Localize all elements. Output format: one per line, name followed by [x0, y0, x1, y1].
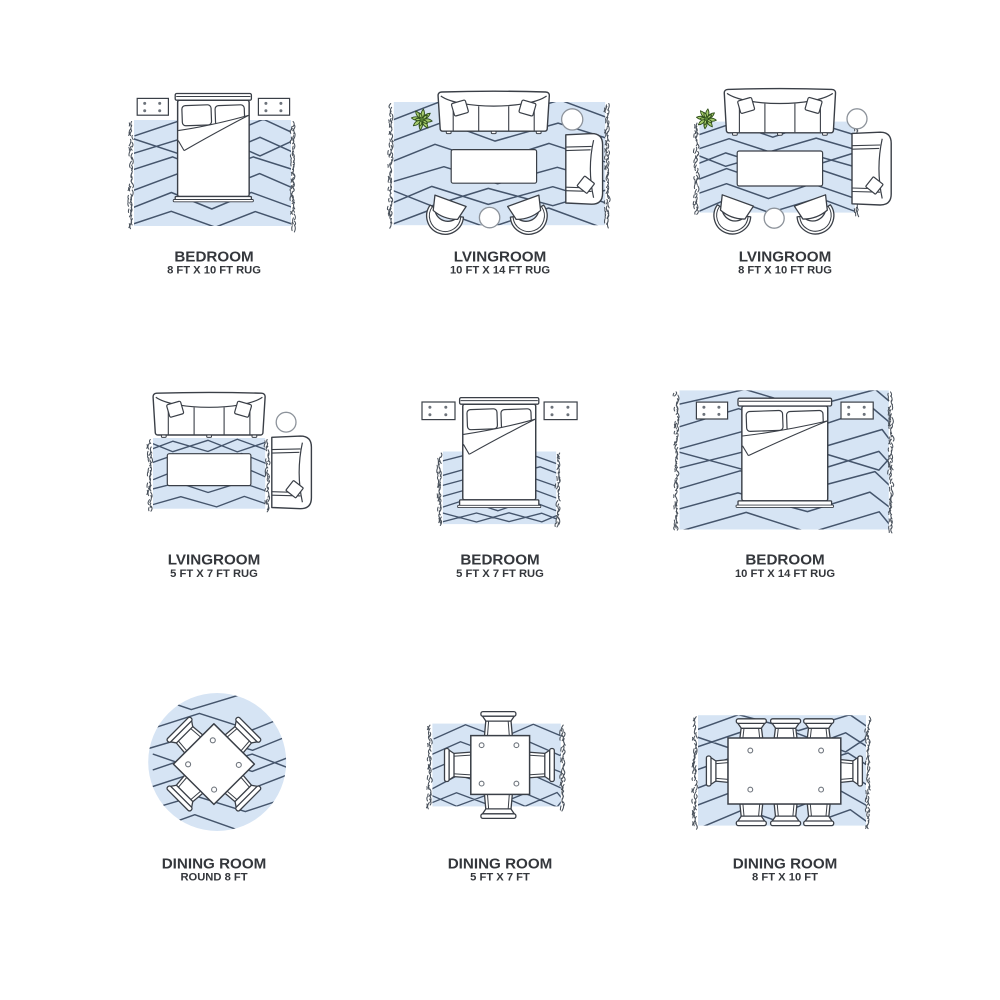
svg-text:DINING ROOM: DINING ROOM [733, 856, 838, 873]
svg-text:ROUND 8 FT: ROUND 8 FT [180, 872, 247, 884]
svg-text:LVINGROOM: LVINGROOM [168, 552, 261, 569]
svg-text:5 FT X 7 FT RUG: 5 FT X 7 FT RUG [456, 568, 544, 580]
svg-text:10 FT X 14 FT RUG: 10 FT X 14 FT RUG [735, 568, 835, 580]
svg-text:DINING ROOM: DINING ROOM [162, 856, 267, 873]
svg-text:LVINGROOM: LVINGROOM [739, 249, 832, 266]
svg-text:8 FT X 10 FT RUG: 8 FT X 10 FT RUG [167, 265, 261, 277]
svg-text:5 FT X 7 FT RUG: 5 FT X 7 FT RUG [170, 568, 258, 580]
svg-text:LVINGROOM: LVINGROOM [454, 249, 547, 266]
svg-text:BEDROOM: BEDROOM [174, 249, 253, 266]
svg-text:5 FT X 7 FT: 5 FT X 7 FT [470, 872, 530, 884]
svg-text:BEDROOM: BEDROOM [745, 552, 824, 569]
svg-text:BEDROOM: BEDROOM [460, 552, 539, 569]
svg-text:8 FT X 10 FT RUG: 8 FT X 10 FT RUG [738, 265, 832, 277]
svg-text:10 FT X 14 FT RUG: 10 FT X 14 FT RUG [450, 265, 550, 277]
svg-text:8 FT X 10 FT: 8 FT X 10 FT [752, 872, 818, 884]
svg-text:DINING ROOM: DINING ROOM [448, 856, 553, 873]
